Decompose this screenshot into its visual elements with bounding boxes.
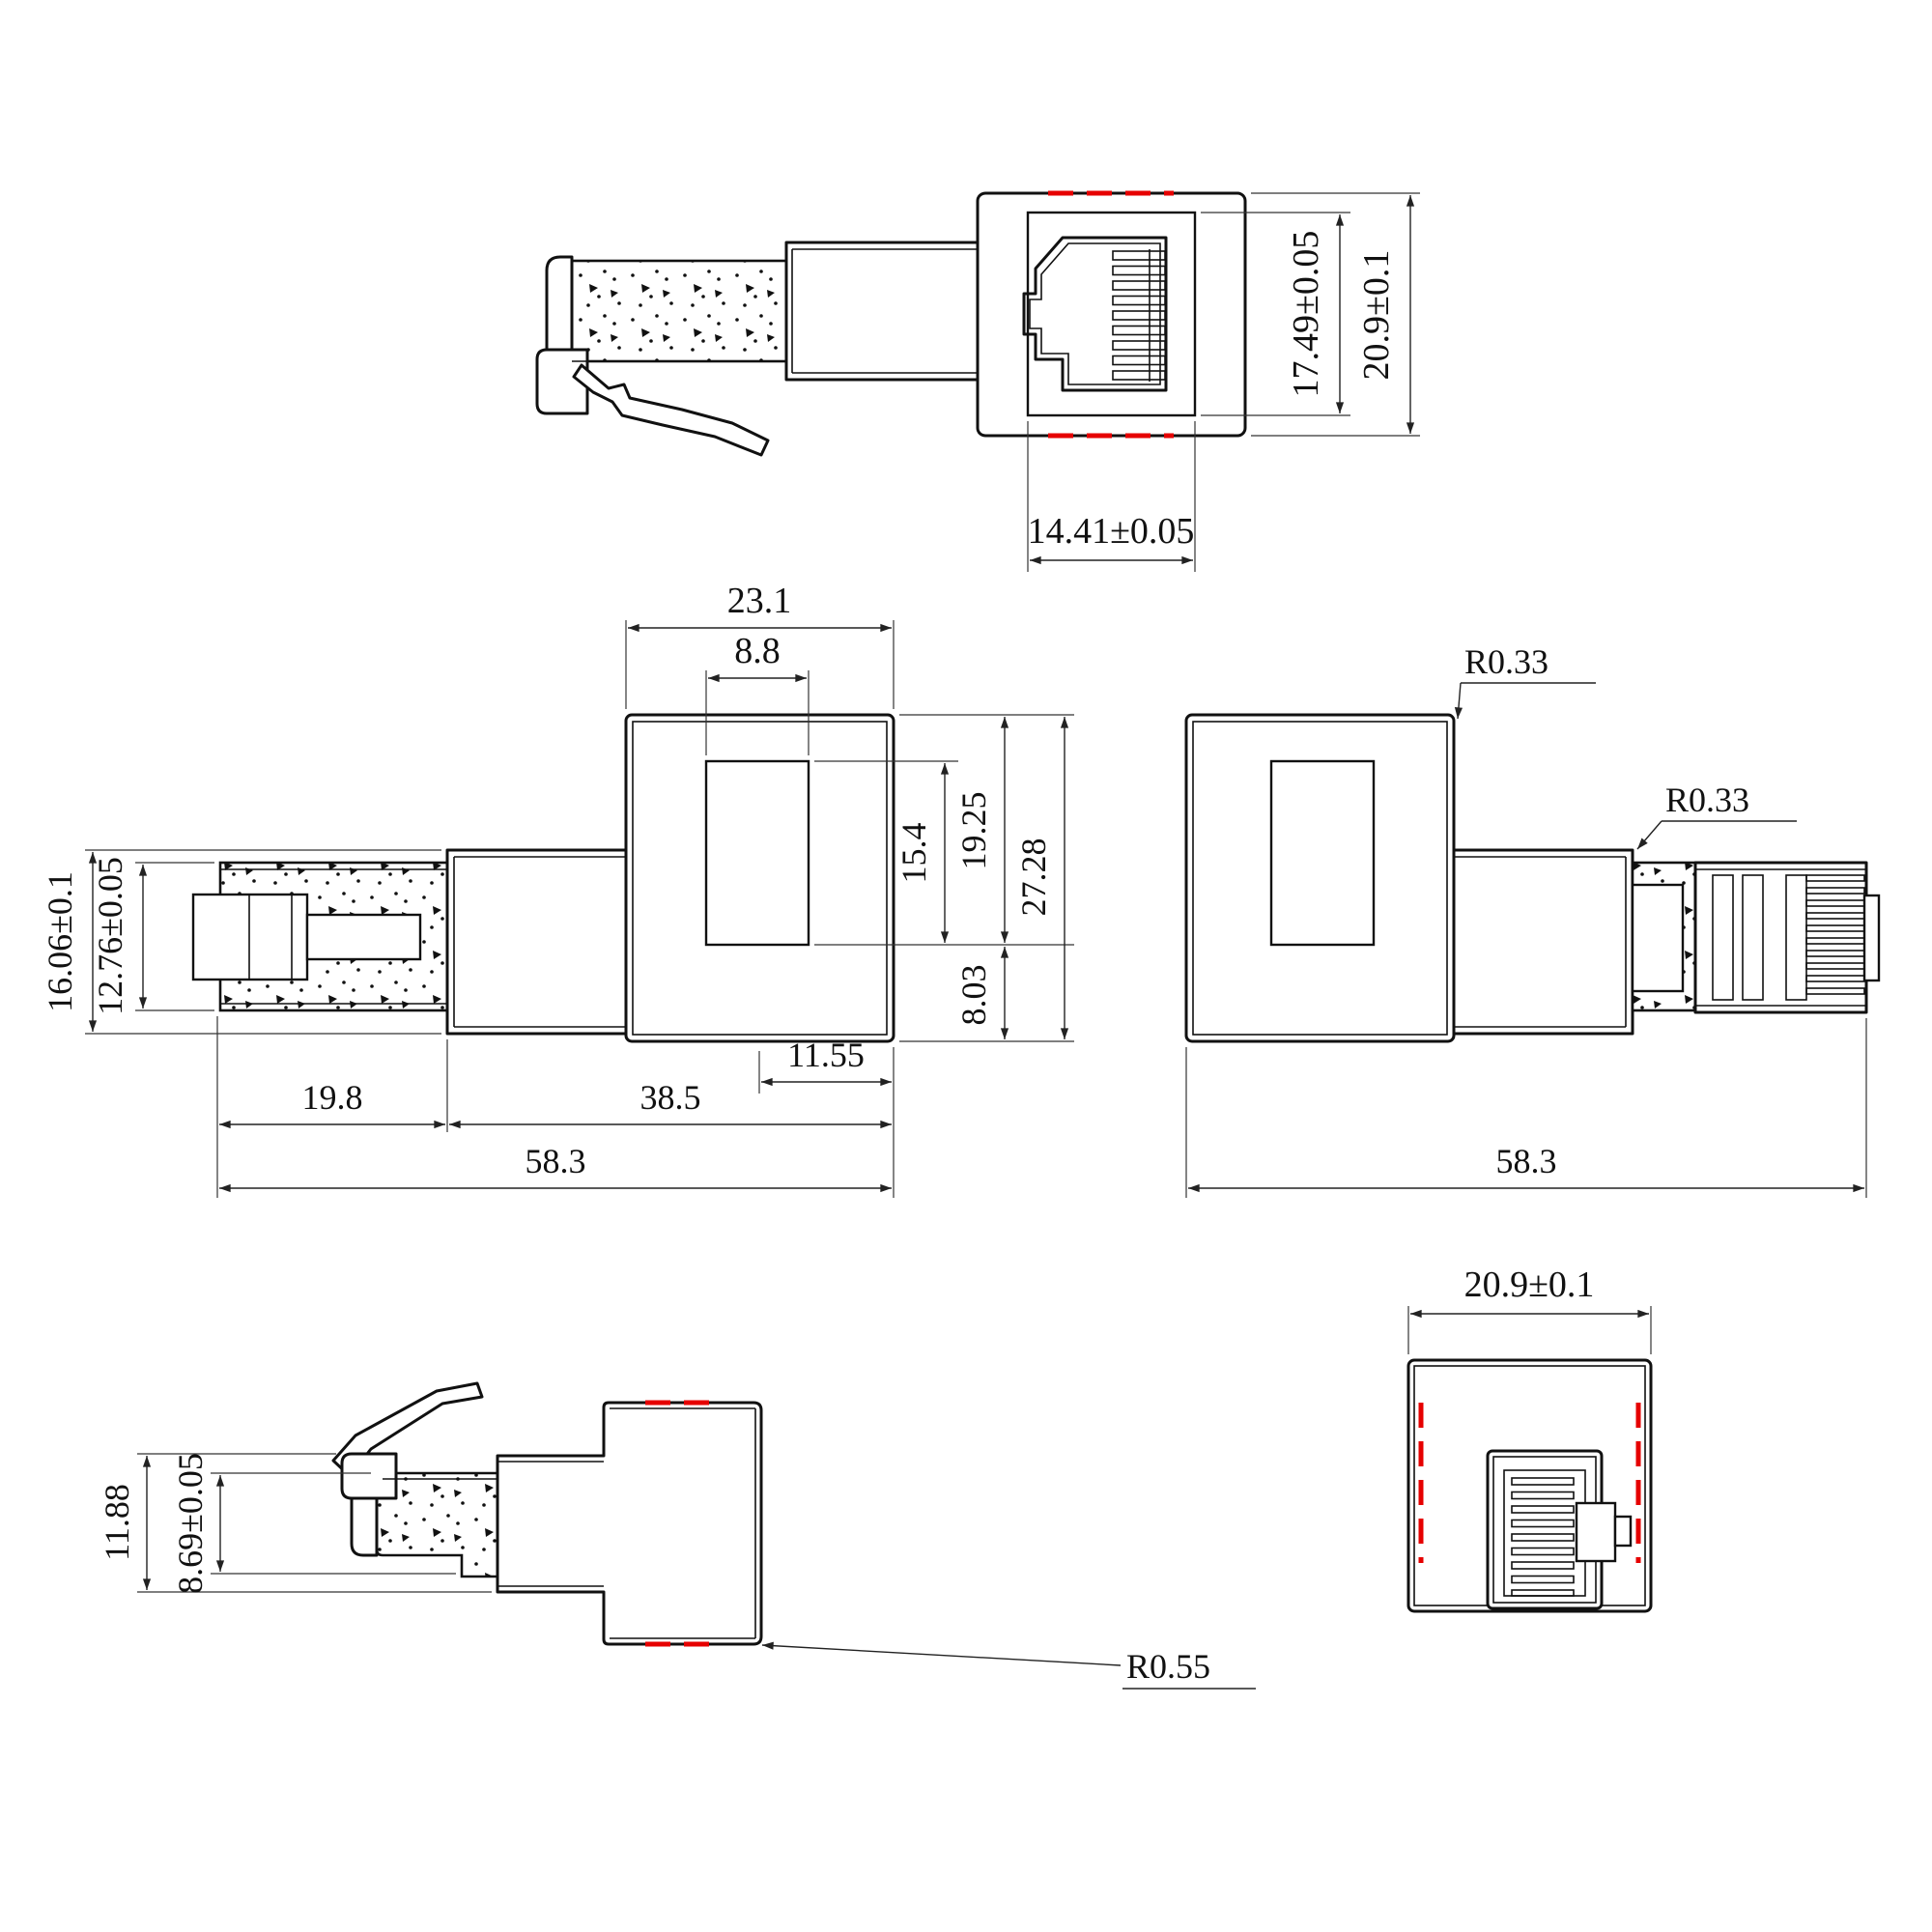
ml-plug-contact-bar (307, 915, 420, 959)
dim-label-sleeve-height-bottom: 11.88 (98, 1484, 136, 1561)
dim-label-body-height: 27.28 (1014, 838, 1053, 917)
middle-left-view: 23.1 8.8 16.06±0.1 12.76±0.05 15.4 19.25… (41, 581, 1074, 1198)
rear-plug-latch-block (1577, 1503, 1615, 1561)
dim-label-socket-height: 17.49±0.05 (1286, 231, 1326, 398)
mr-sleeve-outline (1454, 850, 1633, 1034)
radius-label-body-corner: R0.33 (1464, 642, 1548, 681)
ml-body (626, 715, 894, 1041)
dim-label-plug-length: 19.8 (302, 1078, 363, 1117)
bl-plug-latch-root-block (342, 1454, 396, 1498)
engineering-drawing: 17.49±0.05 20.9±0.1 14.41±0.05 (0, 0, 1932, 1932)
radius-leader (1637, 821, 1662, 849)
dim-label-body-offset: 11.55 (787, 1036, 865, 1074)
top-view-front-face (978, 193, 1245, 436)
radius-leader (762, 1645, 1121, 1665)
dim-label-body-length: 38.5 (640, 1078, 701, 1117)
dim-label-sleeve-height: 16.06±0.1 (41, 871, 79, 1012)
dim-label-socket-width: 14.41±0.05 (1028, 511, 1195, 552)
plug-boot-speckled (572, 261, 786, 361)
ml-plug-frame (193, 895, 307, 980)
sleeve-outline (786, 242, 978, 380)
dim-label-body-height: 20.9±0.1 (1356, 250, 1397, 381)
bl-body (497, 1403, 761, 1644)
radius-label-sleeve-corner: R0.33 (1665, 781, 1749, 819)
dim-label-plug-height: 12.76±0.05 (91, 857, 129, 1015)
dim-label-port-width: 8.8 (734, 631, 781, 671)
rear-plug-latch-tab (1615, 1517, 1631, 1546)
dim-label-total-length: 58.3 (526, 1142, 586, 1180)
ml-sleeve (447, 850, 626, 1034)
dim-label-total-length-right: 58.3 (1496, 1142, 1557, 1180)
mr-plug-boot-window (1633, 885, 1683, 991)
mr-plug (1633, 863, 1879, 1012)
mr-body (1186, 715, 1454, 1041)
dim-label-port-height: 15.4 (895, 823, 933, 884)
ml-plug (193, 863, 447, 1010)
top-view-sleeve (786, 242, 978, 380)
top-view: 17.49±0.05 20.9±0.1 14.41±0.05 (537, 193, 1420, 572)
radius-label-corner: R0.55 (1126, 1647, 1210, 1686)
mr-plug-nose-tab (1864, 895, 1879, 980)
rear-dimensions: 20.9±0.1 (1408, 1264, 1651, 1354)
dim-label-body-width: 23.1 (727, 581, 792, 621)
rear-view: 20.9±0.1 (1408, 1264, 1651, 1611)
mr-port-opening (1271, 761, 1374, 945)
dim-label-plug-height-bottom: 8.69±0.05 (171, 1453, 210, 1594)
drawing-canvas: 17.49±0.05 20.9±0.1 14.41±0.05 (0, 0, 1932, 1932)
mr-sleeve (1454, 850, 1633, 1034)
radius-leader (1458, 683, 1461, 719)
dim-label-port-to-bottom: 8.03 (954, 965, 993, 1026)
ml-sleeve-outline (447, 850, 626, 1034)
middle-right-view: R0.33 R0.33 58.3 (1186, 642, 1879, 1198)
plug-latch-lever (574, 365, 768, 455)
top-view-plug-side (537, 257, 786, 455)
dim-label-top-to-port: 19.25 (954, 792, 993, 870)
bl-body-outline (497, 1403, 761, 1644)
bottom-left-view: 11.88 8.69±0.05 R0.55 (98, 1383, 1256, 1689)
dim-label-rear-width: 20.9±0.1 (1464, 1264, 1595, 1305)
ml-port-opening (706, 761, 809, 945)
